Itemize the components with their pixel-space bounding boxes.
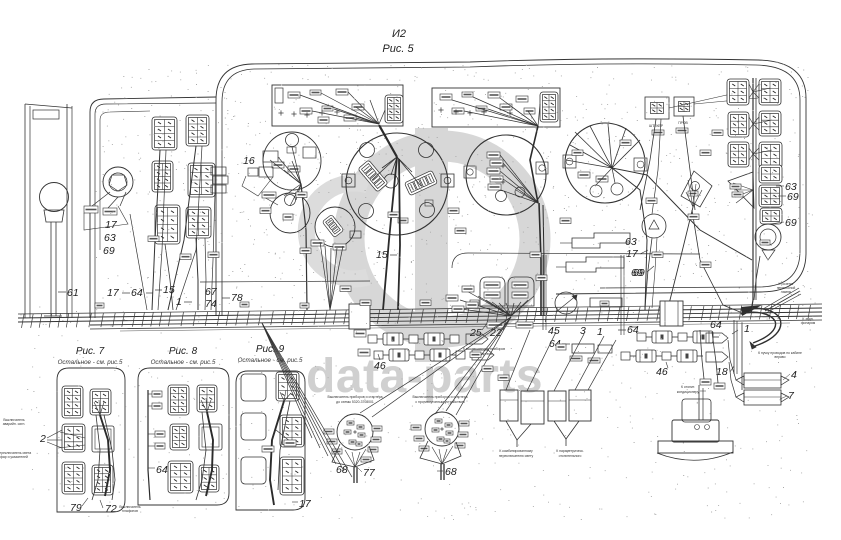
svg-text:17: 17 — [105, 219, 118, 231]
svg-text:18: 18 — [716, 366, 728, 378]
svg-text:ШТЕКЕР: ШТЕКЕР — [649, 124, 664, 128]
svg-text:15: 15 — [163, 284, 175, 296]
svg-text:фонарям: фонарям — [801, 321, 816, 325]
svg-text:И2: И2 — [392, 28, 406, 40]
svg-text:Рис. 7: Рис. 7 — [76, 346, 105, 357]
svg-text:64: 64 — [156, 464, 168, 476]
svg-text:Рис. 9: Рис. 9 — [256, 344, 285, 355]
svg-text:64: 64 — [131, 287, 143, 299]
svg-text:Рис. 5: Рис. 5 — [382, 43, 414, 55]
svg-text:аварийн. сигн.: аварийн. сигн. — [3, 422, 26, 426]
svg-text:К отопит.: К отопит. — [681, 385, 695, 389]
svg-text:1: 1 — [744, 323, 750, 335]
svg-text:69: 69 — [103, 245, 115, 257]
svg-text:16: 16 — [243, 155, 255, 167]
svg-text:68: 68 — [445, 466, 457, 478]
svg-text:кондиционеру: кондиционеру — [677, 390, 699, 394]
svg-text:17: 17 — [299, 498, 312, 510]
svg-text:лампы: лампы — [781, 290, 792, 294]
svg-text:Остальное - см. рис.5: Остальное - см. рис.5 — [238, 357, 303, 364]
svg-text:45: 45 — [548, 325, 560, 337]
svg-text:25: 25 — [469, 327, 482, 339]
svg-text:69: 69 — [785, 217, 797, 229]
svg-text:1: 1 — [176, 296, 182, 308]
svg-text:46: 46 — [374, 360, 386, 372]
svg-text:переключателю свету: переключателю свету — [499, 454, 534, 458]
svg-text:Выключатель приборов и стартер: Выключатель приборов и стартера — [412, 395, 467, 399]
svg-text:68: 68 — [336, 464, 348, 476]
svg-text:Рис. 8: Рис. 8 — [169, 346, 198, 357]
svg-text:Остальное - см. рис.5: Остальное - см. рис.5 — [151, 359, 216, 366]
svg-text:К комбинированному: К комбинированному — [499, 449, 533, 453]
svg-text:63: 63 — [625, 236, 637, 248]
svg-text:1: 1 — [597, 326, 603, 338]
svg-text:Выключатель приборов и стартер: Выключатель приборов и стартера — [327, 395, 382, 399]
svg-text:с противоугонным устройством: с противоугонным устройством — [415, 400, 465, 404]
svg-text:63: 63 — [104, 232, 116, 244]
svg-text:фар и указателей: фар и указателей — [0, 455, 28, 459]
svg-text:4: 4 — [791, 369, 797, 381]
svg-text:77: 77 — [363, 467, 376, 479]
svg-text:74: 74 — [205, 298, 217, 310]
svg-text:46: 46 — [656, 366, 668, 378]
svg-text:67: 67 — [205, 286, 218, 298]
svg-text:17: 17 — [107, 287, 120, 299]
svg-text:61: 61 — [67, 287, 79, 299]
svg-text:79: 79 — [70, 502, 82, 514]
svg-text:Остальное - см. рис.5: Остальное - см. рис.5 — [58, 359, 123, 366]
svg-text:отопительного: отопительного — [559, 454, 582, 458]
svg-text:64: 64 — [710, 319, 722, 331]
svg-text:17: 17 — [626, 248, 639, 260]
svg-text:72: 72 — [105, 503, 117, 515]
svg-text:К выключателям приборов: К выключателям приборов — [463, 347, 505, 351]
svg-text:2: 2 — [39, 433, 46, 445]
svg-text:вправо: вправо — [774, 355, 785, 359]
svg-text:69: 69 — [631, 267, 643, 279]
svg-text:К параметрическ.: К параметрическ. — [556, 449, 584, 453]
svg-text:плафонов: плафонов — [122, 509, 138, 513]
svg-text:до схемы 5320-3708001: до схемы 5320-3708001 — [336, 400, 374, 404]
